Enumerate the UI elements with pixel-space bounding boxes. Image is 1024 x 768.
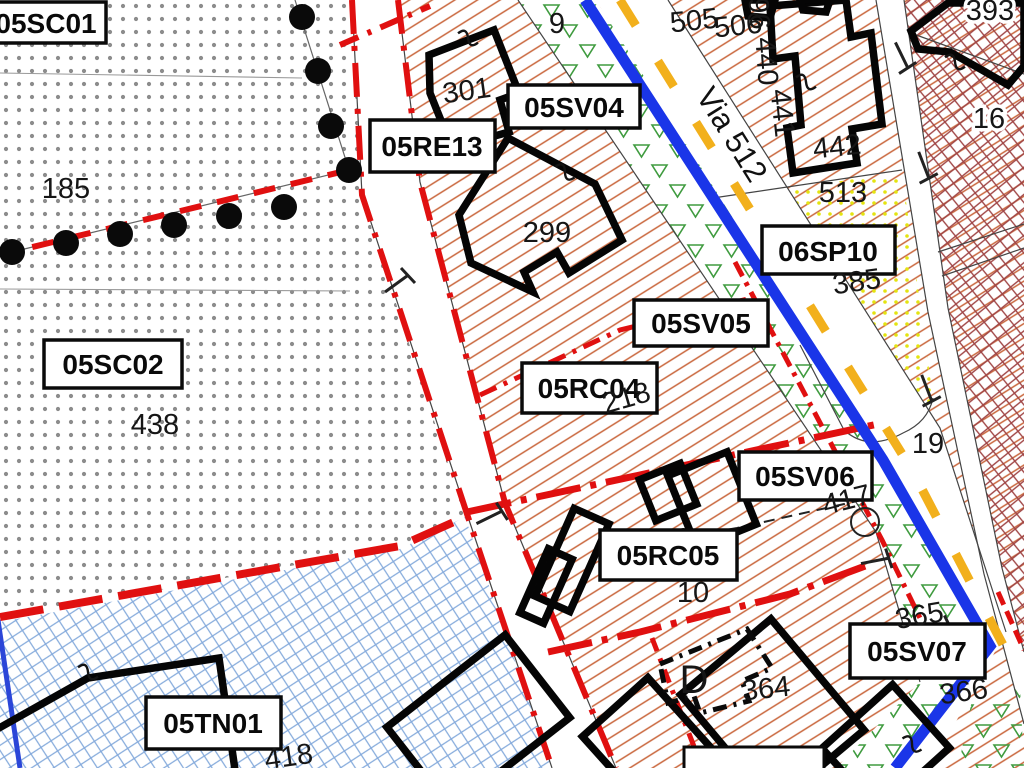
parcel-number-438: 438 (131, 409, 179, 441)
tree-dot (336, 157, 362, 183)
parcel-number-505: 505 (668, 3, 719, 40)
zone-label-06sp10: 06SP10 (778, 236, 878, 267)
zoning-map: 05SC01 05SC02 05RE13 05SV04 05SV05 05RC0… (0, 0, 1024, 768)
tree-dot (161, 212, 187, 238)
tree-dot (289, 4, 315, 30)
parcel-number-442: 442 (811, 129, 862, 166)
zone-label-05sv07: 05SV07 (867, 636, 967, 667)
parcel-number-364: 364 (740, 671, 791, 708)
parcel-number-441: 441 (764, 87, 801, 138)
parcel-number-10: 10 (677, 577, 709, 609)
zone-label-05rc05: 05RC05 (617, 540, 720, 571)
zone-label-05re13: 05RE13 (381, 131, 482, 162)
zone-label-05sv05: 05SV05 (651, 308, 751, 339)
parcel-number-513: 513 (819, 177, 867, 209)
parcel-number-16: 16 (973, 103, 1005, 135)
zone-label-05sc01: 05SC01 (0, 8, 97, 39)
parcel-number-299: 299 (523, 217, 571, 249)
tree-dot (216, 203, 242, 229)
parcel-number-185: 185 (42, 173, 90, 205)
parcel-number-301: 301 (441, 72, 493, 110)
label-box-cut-bottom (684, 747, 824, 768)
zone-label-05sc02: 05SC02 (62, 349, 163, 380)
zone-label-05tn01: 05TN01 (163, 708, 263, 739)
parcel-number-385: 385 (831, 263, 883, 301)
tree-dot (107, 221, 133, 247)
parcel-number-440: 440 (748, 36, 783, 87)
parcel-number-366: 366 (938, 673, 990, 711)
parcel-number-9: 9 (549, 8, 565, 40)
tree-dot (271, 194, 297, 220)
parcel-number-393: 393 (966, 0, 1014, 27)
parcel-letter-d: D (680, 658, 709, 702)
parcel-number-19: 19 (912, 428, 944, 460)
tree-dot (318, 113, 344, 139)
tree-dot (53, 230, 79, 256)
tree-dot (0, 239, 25, 265)
zone-label-05sv04: 05SV04 (524, 92, 624, 123)
tree-dot (305, 58, 331, 84)
parcel-number-396: 396 (740, 0, 775, 31)
